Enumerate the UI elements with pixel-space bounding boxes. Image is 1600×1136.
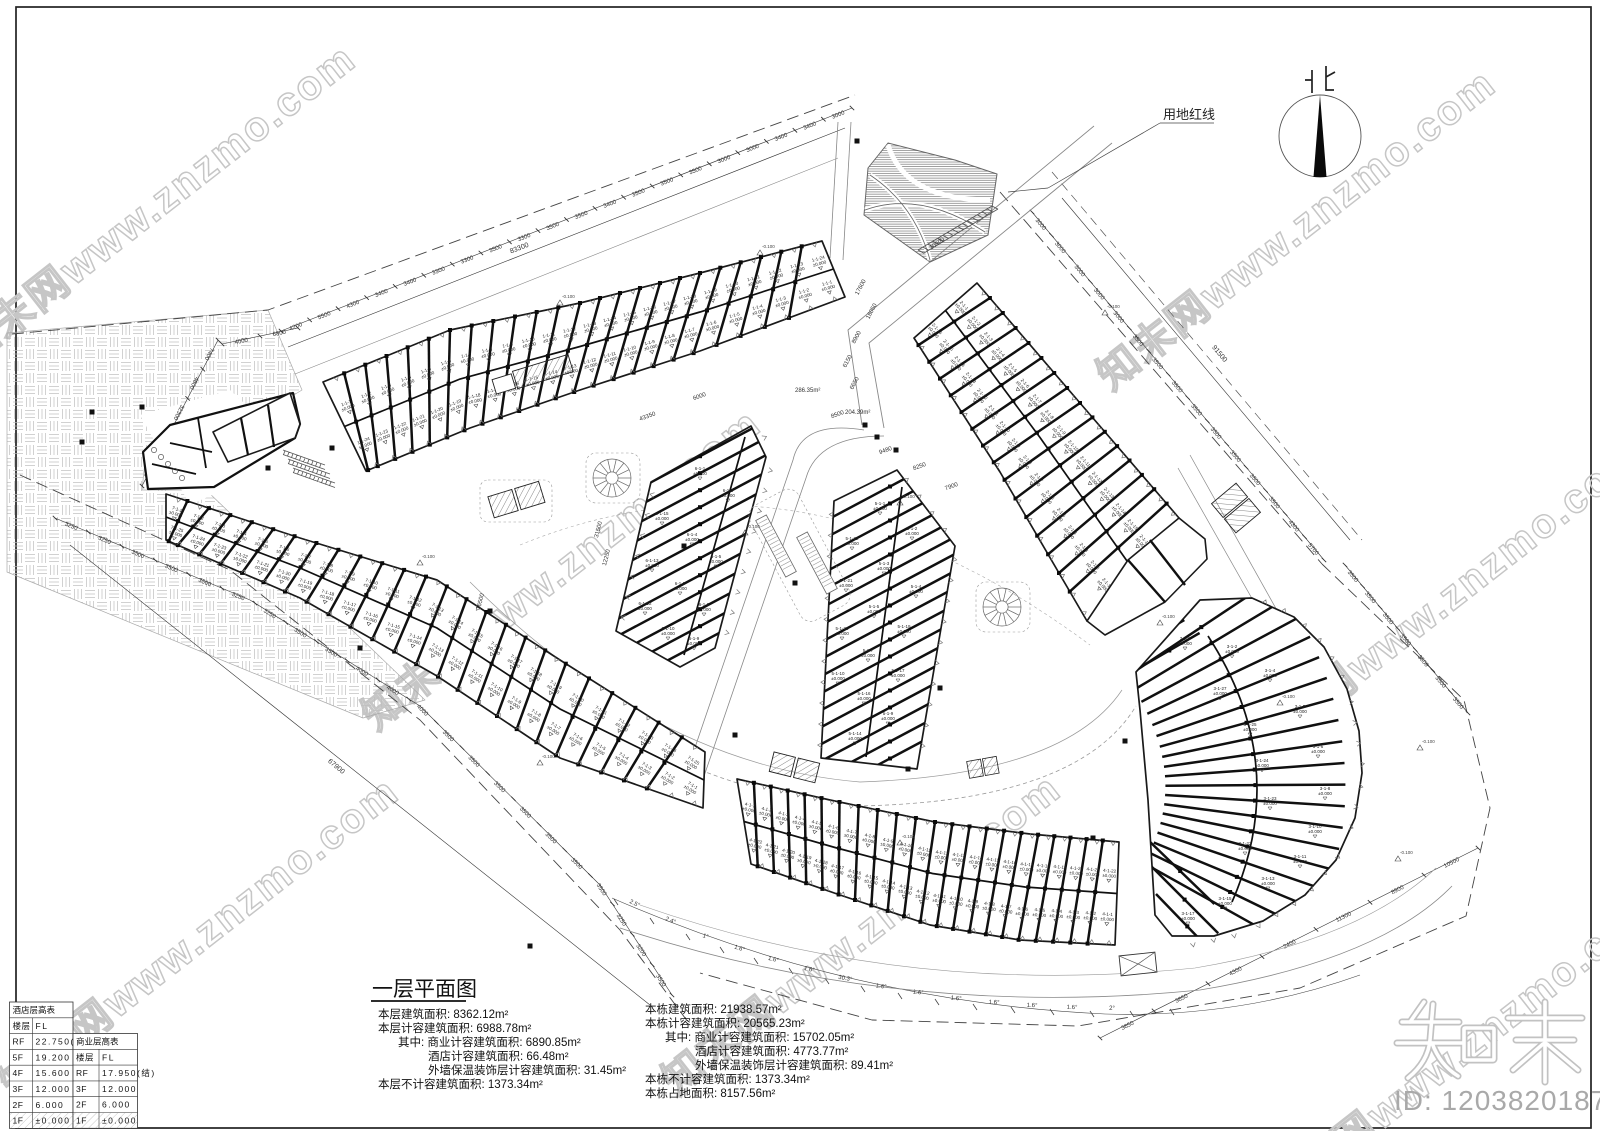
- svg-text:-0.100: -0.100: [762, 244, 775, 249]
- svg-text:-0.100: -0.100: [902, 494, 915, 499]
- svg-text:204.39m²: 204.39m²: [845, 410, 870, 416]
- svg-text:-0.100: -0.100: [542, 754, 555, 759]
- svg-text:±0.000: ±0.000: [897, 629, 911, 634]
- svg-text:±0.000: ±0.000: [645, 563, 659, 568]
- svg-text:本层计容建筑面积: 6988.78m²: 本层计容建筑面积: 6988.78m²: [378, 1021, 532, 1035]
- svg-text:±0.000: ±0.000: [1261, 881, 1275, 886]
- svg-text:外墙保温装饰层计容建筑面积: 31.45m²: 外墙保温装饰层计容建筑面积: 31.45m²: [428, 1063, 626, 1077]
- svg-text:±0.000: ±0.000: [1263, 673, 1277, 678]
- svg-text:-0.100: -0.100: [1422, 739, 1435, 744]
- svg-text:4F: 4F: [13, 1068, 24, 1078]
- svg-text:商业层高表: 商业层高表: [76, 1037, 119, 1047]
- svg-text:±0.000: ±0.000: [1178, 641, 1192, 646]
- svg-text:±0.000: ±0.000: [1311, 749, 1325, 754]
- svg-text:本栋占地面积: 8157.56m²: 本栋占地面积: 8157.56m²: [645, 1086, 776, 1100]
- svg-text:17.950(结): 17.950(结): [102, 1068, 156, 1078]
- svg-text:1.6°: 1.6°: [950, 996, 962, 1003]
- svg-text:±0.000: ±0.000: [1218, 901, 1232, 906]
- svg-text:±0.000: ±0.000: [709, 559, 723, 564]
- svg-text:±0.000: ±0.000: [835, 631, 849, 636]
- svg-text:±0.000: ±0.000: [1213, 691, 1227, 696]
- svg-text:2F: 2F: [13, 1100, 24, 1110]
- svg-text:酒店计容建筑面积: 66.48m²: 酒店计容建筑面积: 66.48m²: [428, 1049, 569, 1063]
- svg-text:±0.000: ±0.000: [1243, 727, 1257, 732]
- svg-text:本层不计容建筑面积: 1373.34m²: 本层不计容建筑面积: 1373.34m²: [378, 1077, 543, 1091]
- svg-text:2F: 2F: [76, 1100, 87, 1110]
- svg-text:用地红线: 用地红线: [1163, 107, 1215, 122]
- svg-text:2°: 2°: [1109, 1006, 1115, 1012]
- svg-text:5F: 5F: [13, 1052, 24, 1062]
- svg-text:一层平面图: 一层平面图: [372, 978, 477, 1001]
- svg-text:±0.000: ±0.000: [909, 589, 923, 594]
- svg-text:±0.000: ±0.000: [848, 736, 862, 741]
- svg-text:±0.000: ±0.000: [839, 583, 853, 588]
- svg-text:±0.000: ±0.000: [1181, 916, 1195, 921]
- svg-text:-0.100: -0.100: [562, 294, 575, 299]
- svg-text:±0.000: ±0.000: [1318, 791, 1332, 796]
- svg-text:±0.000: ±0.000: [638, 606, 652, 611]
- svg-text:1.6°: 1.6°: [989, 1000, 1001, 1007]
- svg-text:-0.100: -0.100: [1282, 694, 1295, 699]
- svg-text:±0.000: ±0.000: [1238, 846, 1252, 851]
- svg-text:1.6°: 1.6°: [1027, 1003, 1039, 1009]
- svg-text:本栋建筑面积: 21938.57m²: 本栋建筑面积: 21938.57m²: [645, 1002, 782, 1016]
- svg-text:楼层: 楼层: [13, 1021, 31, 1031]
- svg-text:±0.000: ±0.000: [721, 493, 735, 498]
- svg-text:±0.000: ±0.000: [845, 541, 859, 546]
- svg-text:FL: FL: [102, 1052, 115, 1062]
- svg-text:±0.000: ±0.000: [1255, 763, 1269, 768]
- svg-text:±0.000: ±0.000: [1308, 829, 1322, 834]
- svg-text:1.6°: 1.6°: [1067, 1005, 1078, 1011]
- svg-text:楼层: 楼层: [76, 1052, 94, 1062]
- svg-text:±0.000: ±0.000: [857, 696, 871, 701]
- svg-text:-0.100: -0.100: [747, 524, 760, 529]
- svg-text:酒店计容建筑面积: 4773.77m²: 酒店计容建筑面积: 4773.77m²: [695, 1044, 849, 1058]
- svg-text:FL: FL: [36, 1021, 49, 1031]
- svg-text:6.000: 6.000: [36, 1100, 65, 1110]
- svg-text:±0.000: ±0.000: [693, 471, 707, 476]
- svg-text:±0.000: ±0.000: [867, 609, 881, 614]
- svg-text:6.000: 6.000: [102, 1100, 131, 1110]
- svg-text:±0.000: ±0.000: [891, 673, 905, 678]
- svg-text:3F: 3F: [13, 1084, 24, 1094]
- svg-text:3F: 3F: [76, 1084, 87, 1094]
- svg-text:本栋不计容建筑面积: 1373.34m²: 本栋不计容建筑面积: 1373.34m²: [645, 1072, 810, 1086]
- svg-text:±0.000: ±0.000: [861, 653, 875, 658]
- svg-text:外墙保温装饰层计容建筑面积: 89.41m²: 外墙保温装饰层计容建筑面积: 89.41m²: [695, 1058, 893, 1072]
- svg-text:±0.000: ±0.000: [655, 516, 669, 521]
- svg-text:±0.000: ±0.000: [877, 566, 891, 571]
- svg-text:-0.100: -0.100: [1400, 850, 1413, 855]
- svg-text:本层建筑面积: 8362.12m²: 本层建筑面积: 8362.12m²: [378, 1007, 509, 1021]
- svg-text:酒店层高表: 酒店层高表: [13, 1005, 56, 1015]
- svg-text:-0.100: -0.100: [1107, 304, 1120, 309]
- svg-text:286.35m²: 286.35m²: [795, 388, 820, 394]
- svg-text:19.200: 19.200: [36, 1052, 71, 1062]
- svg-text:RF: RF: [76, 1068, 88, 1078]
- svg-text:±0.000: ±0.000: [673, 586, 687, 591]
- svg-text:RF: RF: [13, 1037, 25, 1047]
- svg-text:-0.100: -0.100: [902, 834, 915, 839]
- svg-text:±0.000: ±0.000: [831, 676, 845, 681]
- svg-text:±0.000: ±0.000: [661, 631, 675, 636]
- svg-text:其中: 商业计容建筑面积: 15702.05m²: 其中: 商业计容建筑面积: 15702.05m²: [665, 1030, 854, 1044]
- svg-text:±0.000: ±0.000: [1293, 709, 1307, 714]
- svg-text:-0.100: -0.100: [422, 554, 435, 559]
- svg-text:±0.000: ±0.000: [1263, 801, 1277, 806]
- svg-text:ID: 1203820187: ID: 1203820187: [1394, 1085, 1600, 1116]
- svg-text:±0.000: ±0.000: [1293, 859, 1307, 864]
- svg-text:±0.000: ±0.000: [697, 607, 711, 612]
- svg-text:±0.000: ±0.000: [881, 716, 895, 721]
- svg-text:±0.000: ±0.000: [905, 531, 919, 536]
- svg-text:其中: 商业计容建筑面积: 6890.85m²: 其中: 商业计容建筑面积: 6890.85m²: [398, 1035, 581, 1049]
- svg-text:12.000: 12.000: [102, 1084, 137, 1094]
- svg-text:±0.000: ±0.000: [687, 641, 701, 646]
- svg-text:±0.000: ±0.000: [685, 537, 699, 542]
- svg-text:±0.000: ±0.000: [1225, 649, 1239, 654]
- svg-text:12.000: 12.000: [36, 1084, 71, 1094]
- svg-text:15.600: 15.600: [36, 1068, 71, 1078]
- svg-text:本栋计容建筑面积: 20565.23m²: 本栋计容建筑面积: 20565.23m²: [645, 1016, 805, 1030]
- svg-text:±0.000: ±0.000: [873, 506, 887, 511]
- svg-text:-0.100: -0.100: [1162, 614, 1175, 619]
